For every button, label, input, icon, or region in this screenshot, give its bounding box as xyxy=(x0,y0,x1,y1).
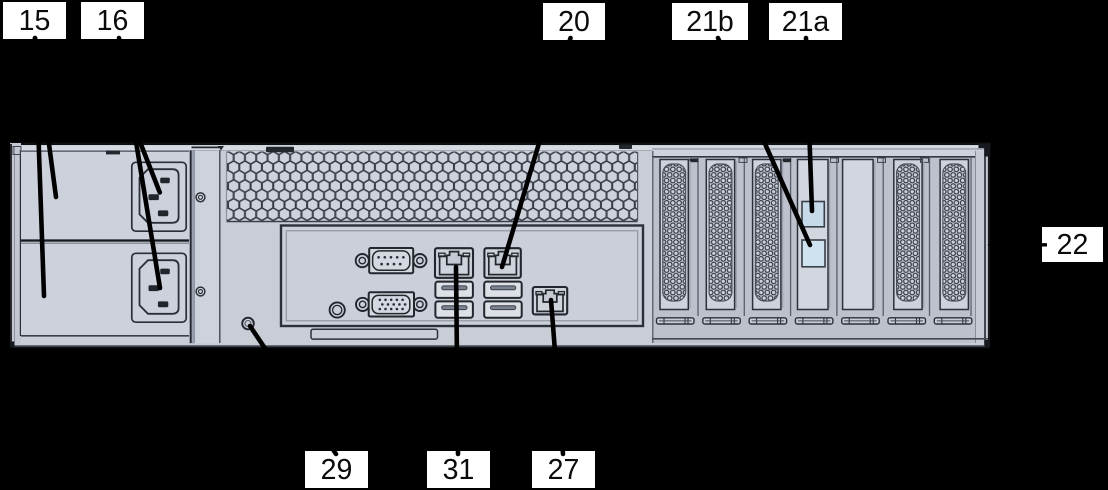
svg-text:21b: 21b xyxy=(686,6,734,38)
svg-text:31: 31 xyxy=(443,454,475,486)
svg-text:15: 15 xyxy=(19,5,51,37)
svg-text:22: 22 xyxy=(1057,229,1089,261)
svg-text:20: 20 xyxy=(558,6,590,38)
svg-text:21a: 21a xyxy=(782,6,830,38)
svg-text:27: 27 xyxy=(548,454,580,486)
svg-text:16: 16 xyxy=(97,5,129,37)
svg-text:29: 29 xyxy=(321,454,353,486)
